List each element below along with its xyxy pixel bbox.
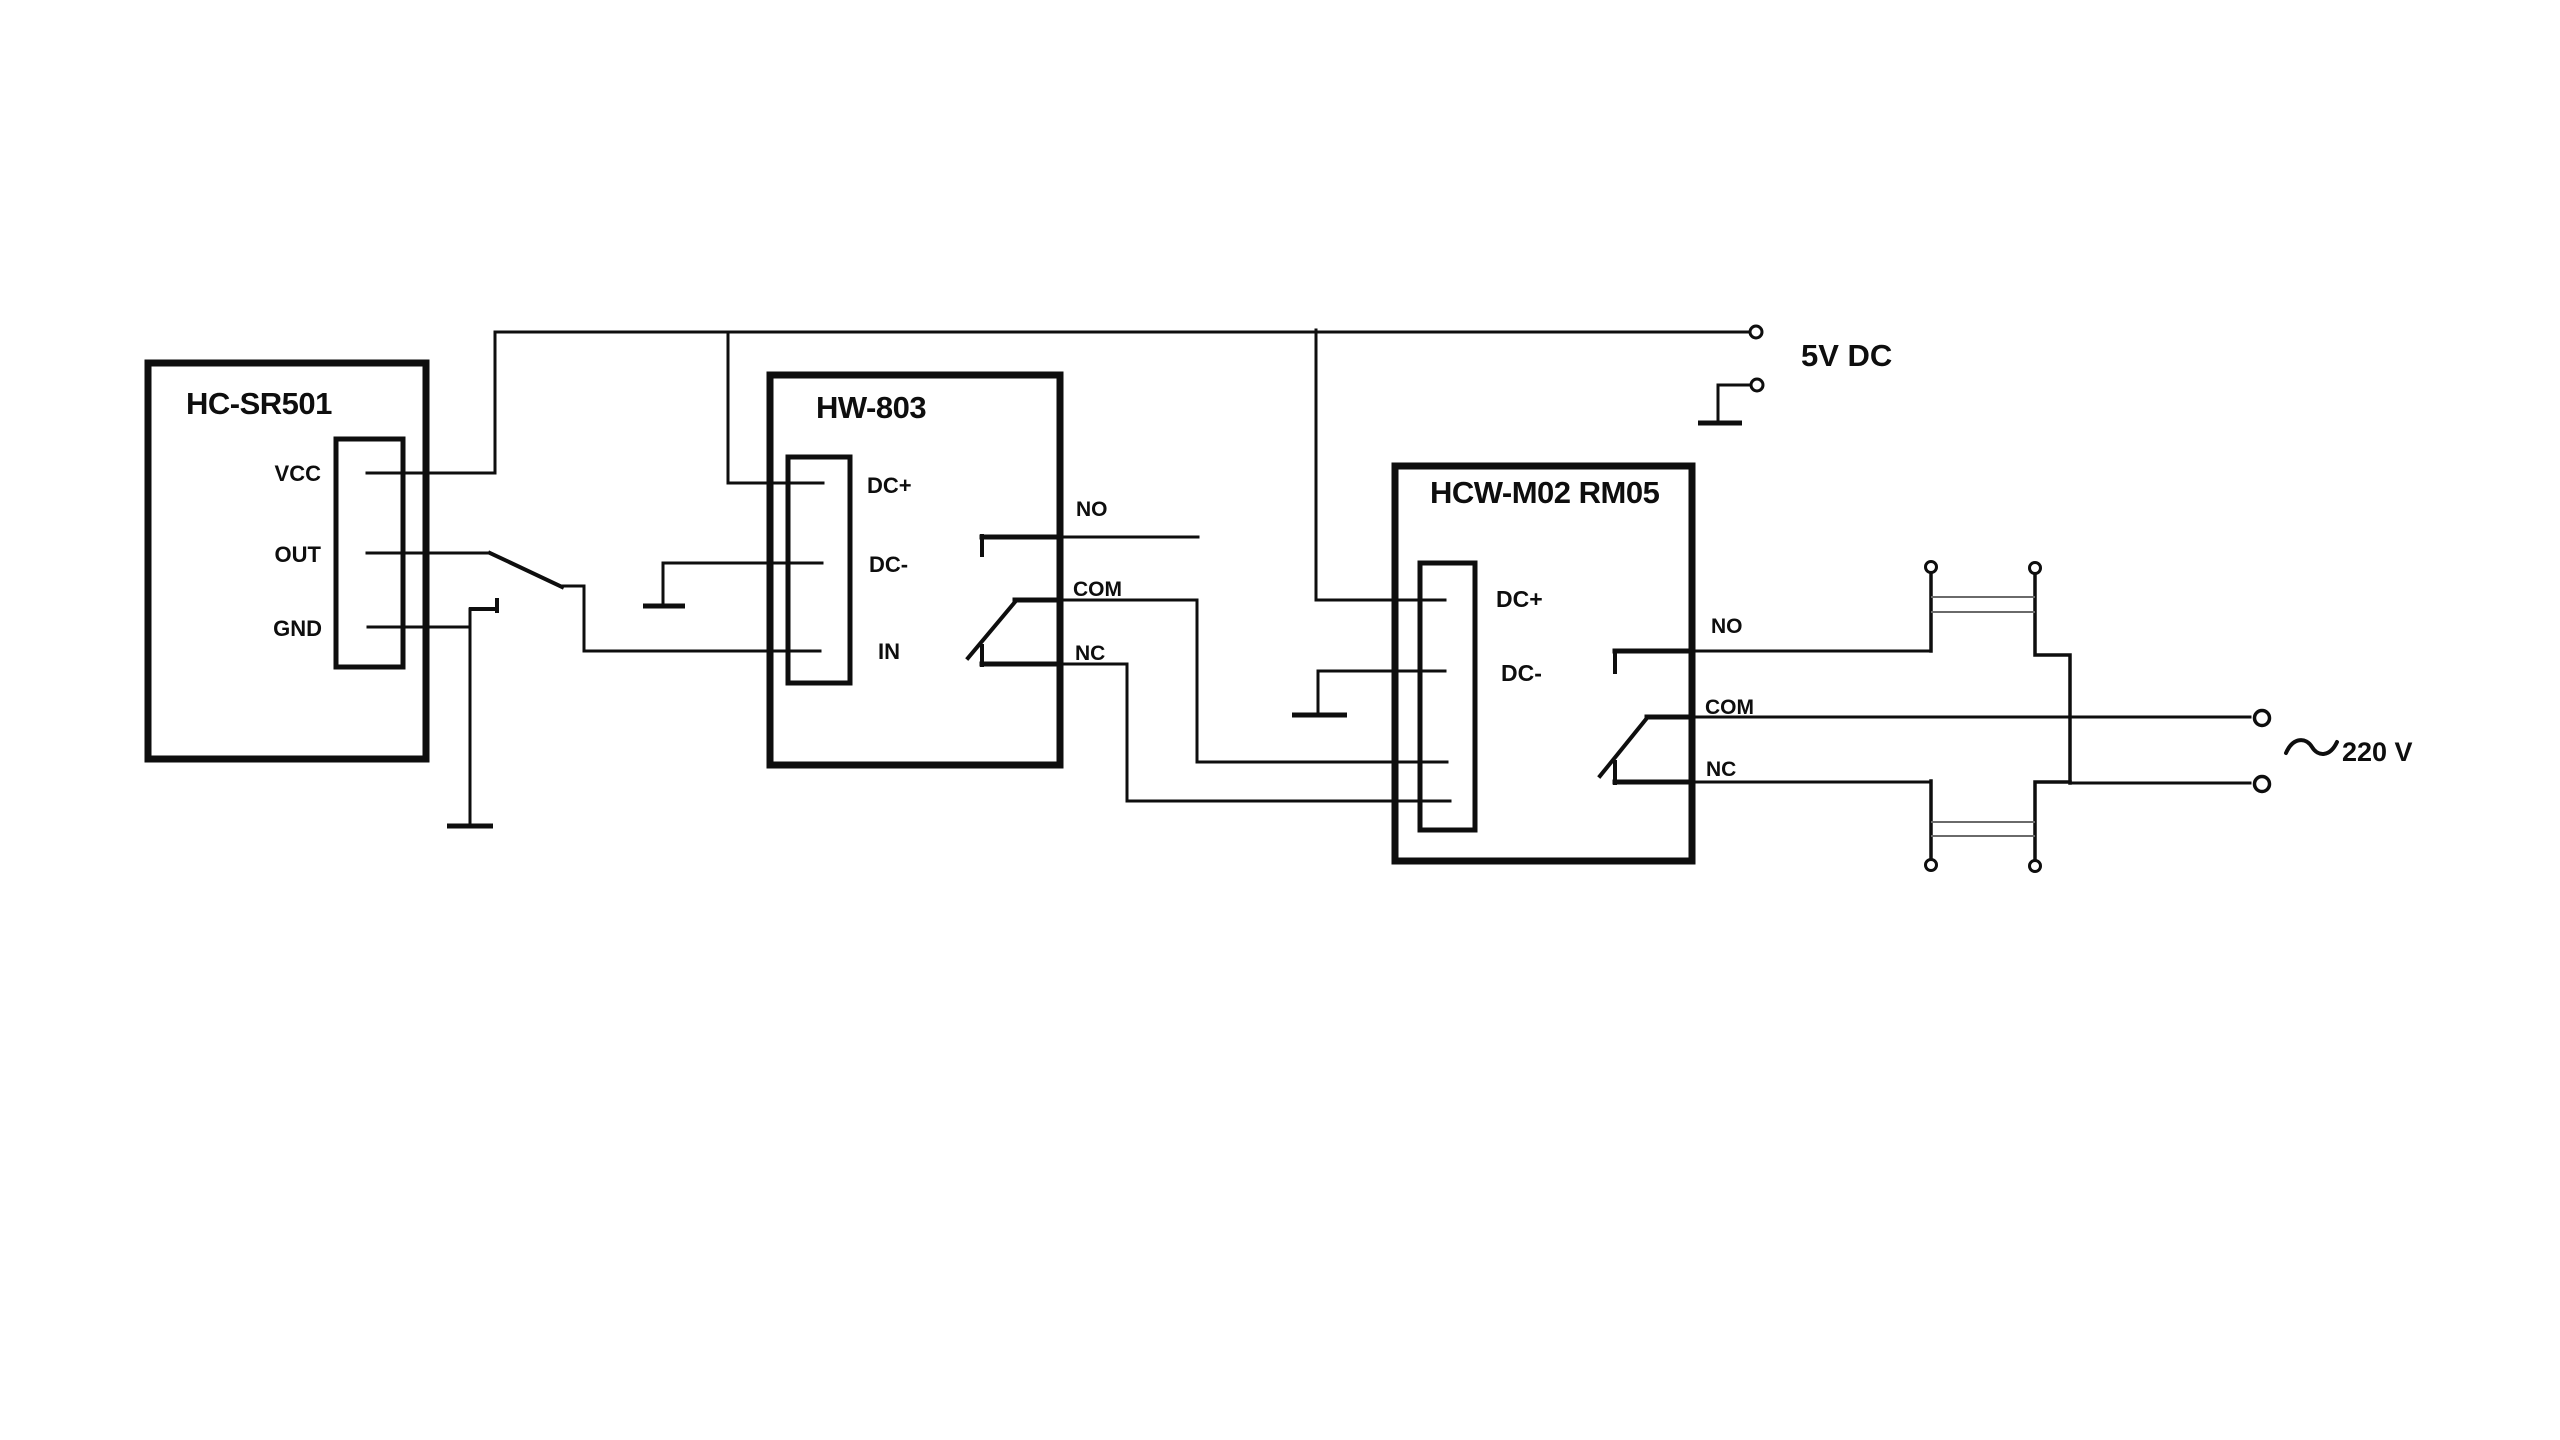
wire-hw-dcplus-feed	[728, 332, 823, 483]
out-switch-contact	[471, 600, 497, 611]
hw-803-contact-no: NO	[1076, 498, 1108, 521]
hc-sr501-pin-vcc: VCC	[275, 461, 322, 486]
heater-top-leads	[1931, 572, 2070, 783]
hcw-m02-title: HCW-M02 RM05	[1430, 475, 1660, 510]
label-220v: 220 V	[2342, 737, 2413, 767]
wire-5v-neg-to-ground	[1718, 385, 1750, 421]
hcw-relay-blade	[1600, 718, 1647, 776]
hcw-m02-pin-dc-plus: DC+	[1496, 586, 1543, 612]
hcw-m02-contact-nc: NC	[1706, 758, 1736, 781]
terminal-220v-line	[2255, 711, 2270, 726]
terminal-5v-positive	[1750, 326, 1762, 338]
circuit-diagram: HC-SR501 VCC OUT GND HW-803 DC+ DC- IN N…	[0, 0, 2560, 1440]
heater-bottom-terminal-left	[1926, 860, 1937, 871]
hw-803-contact-nc: NC	[1075, 642, 1105, 665]
terminal-220v-neutral	[2255, 777, 2270, 792]
hcw-m02-pin-header	[1420, 563, 1475, 830]
schematic-canvas: HC-SR501 VCC OUT GND HW-803 DC+ DC- IN N…	[0, 0, 2560, 1440]
heater-top-terminal-right	[2030, 563, 2041, 574]
hc-sr501-pin-gnd: GND	[273, 616, 322, 641]
ac-tilde-icon	[2286, 740, 2337, 754]
heater-top-terminal-left	[1926, 562, 1937, 573]
hw-803-pin-in: IN	[878, 639, 900, 664]
out-switch-blade	[490, 553, 562, 587]
wire-vcc-to-rail	[367, 332, 495, 473]
hw-803-pin-dc-plus: DC+	[867, 473, 912, 498]
wire-hcw-dcminus	[1318, 671, 1445, 713]
hcw-m02-contact-com: COM	[1705, 696, 1754, 719]
terminal-5v-negative	[1751, 379, 1763, 391]
label-5v-dc: 5V DC	[1801, 338, 1892, 373]
hw-803-title: HW-803	[816, 390, 926, 425]
wire-hw-com-to-hcw	[1060, 600, 1447, 762]
hw-803-pin-header	[788, 457, 850, 683]
heater-top-body	[1931, 597, 2035, 612]
hc-sr501-title: HC-SR501	[186, 386, 332, 421]
wire-out-to-in	[562, 586, 820, 651]
hw-803-box	[770, 375, 1060, 765]
hcw-m02-contact-no: NO	[1711, 615, 1743, 638]
hcw-m02-pin-dc-minus: DC-	[1501, 660, 1542, 686]
hw-803-contact-com: COM	[1073, 578, 1122, 601]
hw-803-pin-dc-minus: DC-	[869, 552, 908, 577]
wire-hw-dcminus	[663, 563, 822, 604]
hw-relay-blade	[968, 602, 1015, 658]
hc-sr501-pin-out: OUT	[275, 542, 322, 567]
heater-bottom-terminal-right	[2030, 861, 2041, 872]
heater-bottom-body	[1931, 822, 2035, 836]
